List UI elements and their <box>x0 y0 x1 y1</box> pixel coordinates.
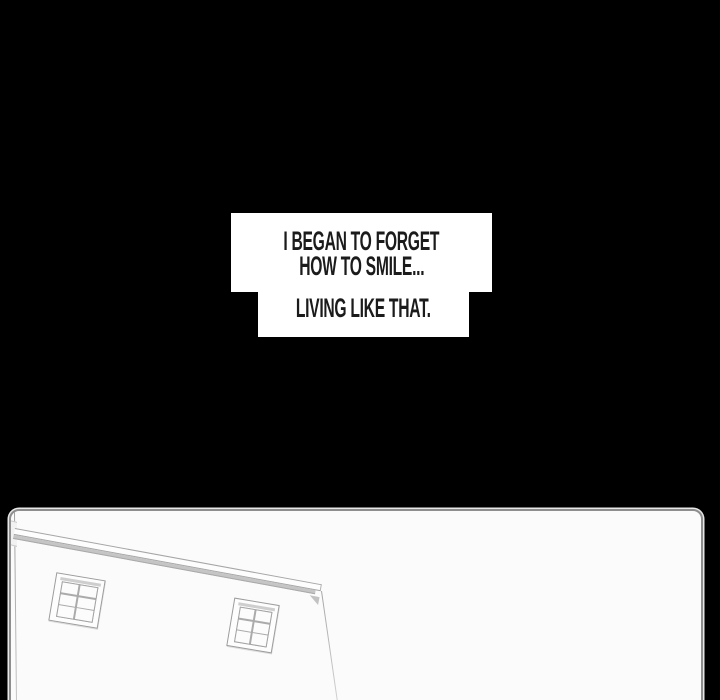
webtoon-page: I BEGAN TO FORGET HOW TO SMILE... LIVING… <box>0 0 720 700</box>
window-six-pane-right <box>226 598 279 654</box>
window-pane <box>253 622 269 634</box>
building-right-edge-line <box>321 591 339 700</box>
caption-text: HOW TO SMILE... <box>299 254 424 279</box>
window-pane <box>59 594 77 607</box>
window-pane <box>255 610 271 622</box>
window-pane <box>77 597 95 610</box>
caption-box-bottom: LIVING LIKE THAT. <box>258 292 469 337</box>
window-six-pane-left <box>48 572 105 629</box>
window-pane <box>235 631 251 643</box>
window-pane <box>79 585 97 598</box>
caption-line: LIVING LIKE THAT. <box>247 296 480 321</box>
window-pane <box>239 608 255 620</box>
caption-line: HOW TO SMILE... <box>254 254 470 279</box>
window-sash-grid <box>56 581 98 622</box>
window-sash-grid <box>234 607 272 647</box>
window-pane <box>251 633 267 645</box>
caption-text: LIVING LIKE THAT. <box>296 296 431 321</box>
eave-corner-shadow <box>308 595 319 605</box>
caption-box-top: I BEGAN TO FORGET HOW TO SMILE... <box>231 213 492 292</box>
window-pane <box>75 608 93 621</box>
window-pane <box>61 582 79 595</box>
window-pane <box>57 605 75 618</box>
comic-panel <box>9 509 703 700</box>
window-pane <box>237 619 253 631</box>
